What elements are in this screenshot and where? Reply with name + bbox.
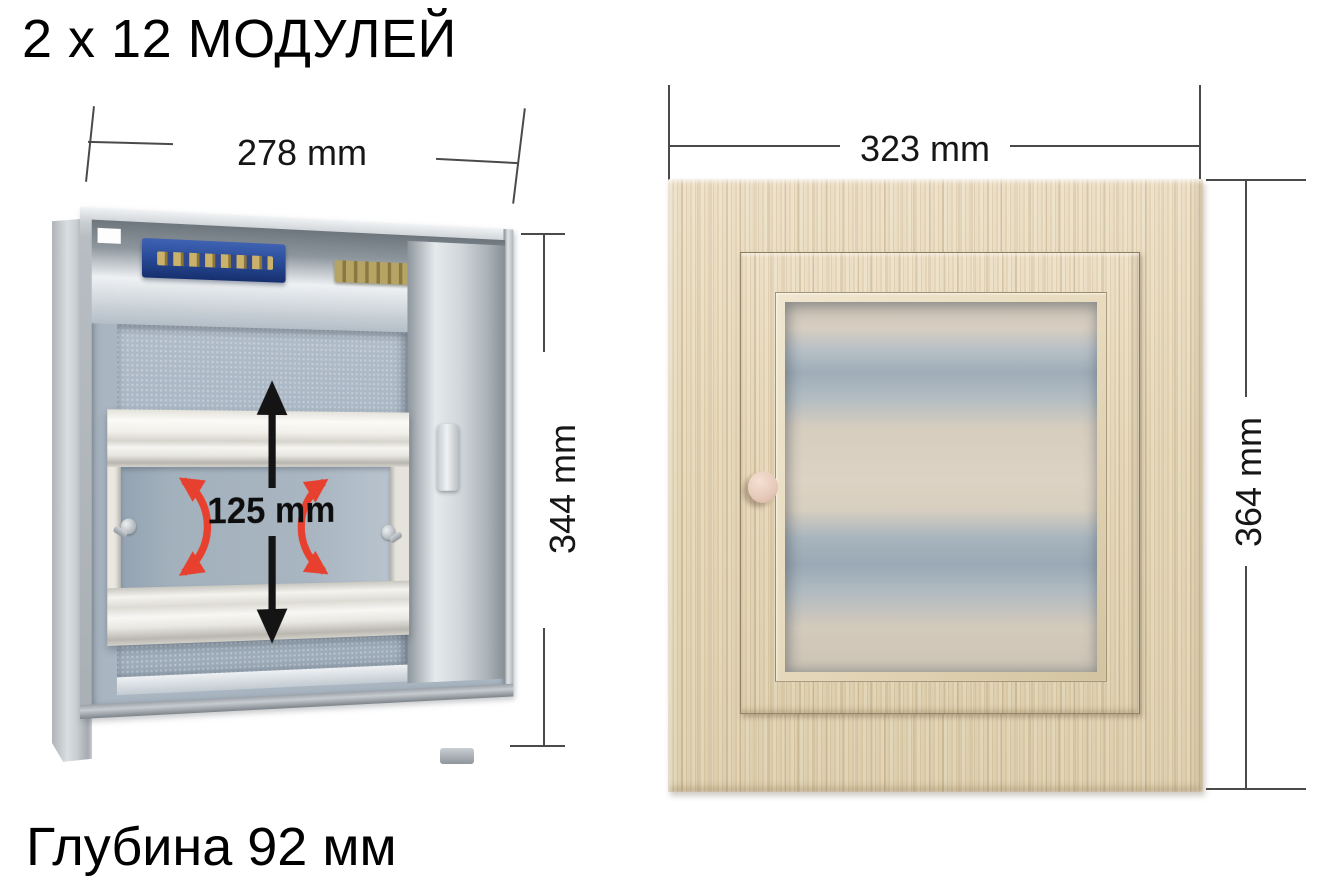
dim-323-line-left	[670, 145, 840, 147]
rail-swing-arrow-left curved-rotation-arrow-icon	[148, 467, 193, 587]
carrier-screw-right	[382, 525, 396, 540]
dim-364-line-lower	[1245, 566, 1247, 788]
page-title: 2 x 12 МОДУЛЕЙ	[22, 8, 457, 70]
dim-278-extension-left	[85, 106, 95, 182]
dim-344-line-lower	[543, 628, 545, 746]
dim-364-label: 364 mm	[1229, 412, 1269, 552]
dim-344-tick-bottom	[510, 745, 565, 747]
dim-344-label: 344 mm	[543, 419, 583, 559]
rail-travel-arrow-down arrow-down-icon	[254, 536, 290, 645]
dim-364-tick-top	[1206, 179, 1306, 181]
metal-enclosure: 125 mm	[80, 207, 513, 719]
rail-travel-dimension: 125 mm	[189, 489, 352, 533]
dim-278-label: 278 mm	[222, 132, 382, 174]
wooden-door-leaf	[740, 252, 1140, 714]
wooden-door-frame	[668, 179, 1203, 792]
dim-323-label: 323 mm	[840, 128, 1010, 170]
enclosure-interior: 125 mm	[92, 220, 505, 705]
terminal-screw-row	[157, 251, 273, 270]
dim-364-line-upper	[1245, 181, 1247, 397]
dim-364-tick-bottom	[1206, 788, 1306, 790]
page-caption: Глубина 92 мм	[26, 816, 397, 878]
door-knob	[748, 471, 778, 503]
dim-323-extension-left	[668, 85, 670, 181]
enclosure-interior-right-wall	[407, 241, 505, 683]
enclosure-bottom-foot	[440, 748, 474, 764]
neutral-terminal-block	[142, 238, 286, 283]
dim-323-extension-right	[1199, 85, 1201, 179]
enclosure-front-frame: 125 mm	[80, 207, 513, 719]
dim-278-line-right	[436, 158, 518, 164]
rail-travel-arrow-up arrow-up-icon	[254, 380, 290, 488]
frosted-glass-window	[785, 302, 1097, 672]
dim-323-line-right	[1010, 145, 1200, 147]
dim-344-line-upper	[543, 234, 545, 352]
dim-278-extension-right	[512, 108, 526, 204]
dim-278-line-left	[88, 141, 173, 145]
enclosure-latch-plate	[437, 424, 459, 491]
enclosure-cable-knockout	[98, 228, 121, 244]
carrier-screw-left	[121, 518, 136, 534]
glass-bevel-frame	[775, 292, 1107, 682]
